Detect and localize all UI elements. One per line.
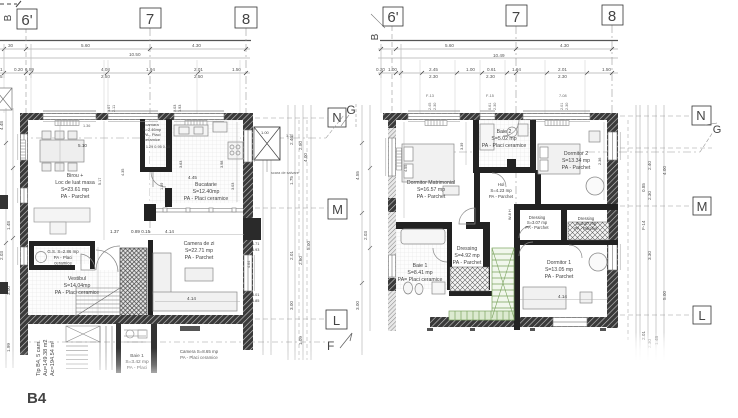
svg-text:Dormitor 1: Dormitor 1	[547, 260, 571, 266]
svg-text:S=14.04mp: S=14.04mp	[64, 283, 91, 289]
svg-text:1.94: 1.94	[146, 67, 155, 72]
svg-text:PA - Placi: PA - Placi	[54, 255, 73, 260]
svg-text:2.01: 2.01	[560, 103, 564, 110]
svg-text:M: M	[332, 202, 343, 217]
svg-text:2.03: 2.03	[363, 231, 368, 240]
svg-text:PA - Parchet: PA - Parchet	[61, 194, 90, 200]
svg-text:2.46: 2.46	[289, 136, 294, 145]
svg-text:5: 5	[0, 74, 3, 79]
svg-text:0.20: 0.20	[14, 67, 23, 72]
svg-text:L: L	[698, 308, 705, 323]
svg-text:F: F	[327, 339, 334, 353]
svg-text:1.29 0.95 0.15: 1.29 0.95 0.15	[146, 145, 170, 149]
svg-text:S=4.92 mp: S=4.92 mp	[454, 253, 479, 259]
svg-text:B4: B4	[27, 390, 47, 407]
svg-text:W-8 H: W-8 H	[508, 209, 512, 220]
svg-text:2.11: 2.11	[112, 105, 116, 112]
svg-text:1.37: 1.37	[110, 229, 119, 234]
svg-text:2.45: 2.45	[429, 67, 438, 72]
svg-text:F-13: F-13	[426, 94, 434, 98]
svg-text:2.50: 2.50	[298, 141, 303, 150]
svg-text:4.30: 4.30	[192, 43, 201, 48]
svg-text:0.20: 0.20	[376, 67, 385, 72]
svg-text:8: 8	[608, 8, 616, 25]
svg-text:Loc de luat masa: Loc de luat masa	[55, 180, 95, 186]
svg-text:4.35: 4.35	[121, 169, 125, 176]
svg-text:2.01: 2.01	[194, 67, 203, 72]
svg-text:2.50: 2.50	[101, 74, 110, 79]
svg-text:1.39: 1.39	[160, 183, 164, 190]
svg-text:8.01: 8.01	[252, 293, 259, 297]
svg-text:4.48: 4.48	[0, 121, 4, 130]
svg-text:ceramice: ceramice	[54, 261, 72, 266]
svg-text:2.03: 2.03	[0, 251, 4, 260]
svg-text:1.75: 1.75	[289, 176, 294, 185]
svg-text:B: B	[3, 14, 14, 21]
svg-text:3.63: 3.63	[179, 161, 183, 168]
svg-text:1.48: 1.48	[6, 221, 11, 230]
svg-text:2.50: 2.50	[194, 74, 203, 79]
svg-text:PA - Placi ceramice: PA - Placi ceramice	[184, 196, 229, 202]
svg-text:N: N	[696, 108, 705, 123]
svg-text:3.39: 3.39	[460, 143, 464, 150]
svg-text:S=8.41 mp: S=8.41 mp	[407, 270, 432, 276]
svg-text:G: G	[713, 124, 722, 136]
svg-text:3.98: 3.98	[220, 161, 224, 168]
svg-text:S=23.61 mp: S=23.61 mp	[61, 187, 89, 193]
svg-text:scara de salvare: scara de salvare	[271, 171, 299, 175]
svg-text:2.30: 2.30	[429, 74, 438, 79]
svg-text:6': 6'	[387, 9, 398, 26]
svg-text:Vestibul: Vestibul	[68, 276, 86, 282]
svg-text:7-08: 7-08	[559, 94, 567, 98]
svg-text:PA - Placi ceramice: PA - Placi ceramice	[55, 290, 100, 296]
svg-text:PA - Parchet: PA - Parchet	[574, 226, 598, 231]
svg-text:1.50: 1.50	[602, 67, 611, 72]
svg-text:2.30: 2.30	[433, 103, 437, 110]
svg-text:F-14: F-14	[641, 220, 646, 230]
svg-text:4.55: 4.55	[404, 165, 408, 172]
svg-text:5.00: 5.00	[306, 241, 311, 250]
svg-text:Hol: Hol	[498, 182, 505, 187]
svg-text:S=4.23 mp: S=4.23 mp	[490, 188, 512, 193]
svg-text:1.07: 1.07	[107, 105, 111, 112]
svg-text:1.94: 1.94	[512, 67, 521, 72]
svg-text:2.01: 2.01	[289, 251, 294, 260]
svg-text:3.03: 3.03	[173, 105, 177, 112]
svg-text:S=16.57 mp: S=16.57 mp	[417, 187, 445, 193]
svg-text:1.71: 1.71	[252, 242, 259, 246]
svg-text:5.17: 5.17	[98, 178, 102, 185]
svg-text:PA - Parchet: PA - Parchet	[545, 274, 574, 280]
svg-text:4.08: 4.08	[101, 67, 110, 72]
svg-text:4.14: 4.14	[558, 294, 567, 299]
svg-text:5.60: 5.60	[445, 43, 454, 48]
svg-text:4.14: 4.14	[187, 296, 196, 301]
svg-text:10.50: 10.50	[129, 52, 141, 57]
svg-text:4.30: 4.30	[560, 43, 569, 48]
svg-text:PA - Parchet: PA - Parchet	[185, 255, 214, 261]
svg-text:0.89 0.15: 0.89 0.15	[131, 229, 151, 234]
svg-text:Bucatarie: Bucatarie	[195, 182, 217, 188]
svg-text:F-15: F-15	[486, 94, 494, 98]
svg-text:2.60: 2.60	[298, 256, 303, 265]
svg-text:5.00: 5.00	[662, 291, 667, 300]
svg-text:5.60: 5.60	[81, 43, 90, 48]
svg-text:2.30: 2.30	[647, 191, 652, 200]
svg-text:10.49: 10.49	[493, 53, 505, 58]
svg-text:2.30: 2.30	[493, 103, 497, 110]
svg-text:S=13.05 mp: S=13.05 mp	[545, 267, 573, 273]
svg-text:4.55: 4.55	[355, 171, 360, 180]
svg-text:7: 7	[146, 11, 154, 28]
svg-text:1.00: 1.00	[466, 67, 475, 72]
svg-text:2.30: 2.30	[565, 103, 569, 110]
svg-text:Baie 1: Baie 1	[413, 263, 428, 269]
svg-text:0.85: 0.85	[641, 183, 646, 192]
svg-text:4.14: 4.14	[165, 229, 174, 234]
svg-text:B: B	[370, 33, 381, 40]
svg-text:S=12.40mp: S=12.40mp	[193, 189, 220, 195]
svg-text:PA - Parchet: PA - Parchet	[562, 165, 591, 171]
svg-text:2.30: 2.30	[486, 74, 495, 79]
svg-text:1.09: 1.09	[298, 336, 303, 345]
svg-text:S=5.02 mp: S=5.02 mp	[491, 136, 516, 142]
svg-text:2.01: 2.01	[558, 67, 567, 72]
svg-text:6.99: 6.99	[25, 67, 34, 72]
svg-text:Dormitor Matrimonial: Dormitor Matrimonial	[407, 180, 455, 186]
svg-text:PA - Placi ceramice: PA - Placi ceramice	[482, 143, 527, 149]
svg-text:3.00: 3.00	[355, 301, 360, 310]
svg-text:1.00: 1.00	[388, 67, 397, 72]
svg-text:Dormitor 2: Dormitor 2	[564, 151, 588, 157]
svg-text:5.10: 5.10	[78, 143, 87, 148]
svg-text:Au=149.38 m2: Au=149.38 m2	[43, 339, 49, 376]
svg-text:1.00: 1.00	[261, 130, 270, 135]
svg-text:4.45: 4.45	[188, 175, 197, 180]
svg-text:G.S. S=2.86 mp: G.S. S=2.86 mp	[47, 249, 79, 254]
svg-text:4.00: 4.00	[303, 153, 308, 162]
svg-text:Baie 2: Baie 2	[497, 129, 512, 135]
svg-text:Camera de zi: Camera de zi	[184, 241, 215, 247]
svg-text:Ac=194.54 m²: Ac=194.54 m²	[50, 341, 56, 376]
svg-text:1.36: 1.36	[83, 124, 90, 128]
svg-text:N: N	[332, 110, 341, 125]
svg-text:S=22.71 mp: S=22.71 mp	[185, 248, 213, 254]
svg-text:3.00: 3.00	[289, 301, 294, 310]
svg-text:PA - Parchet: PA - Parchet	[417, 194, 446, 200]
svg-text:1: 1	[0, 67, 3, 72]
svg-text:2.45: 2.45	[428, 103, 432, 110]
svg-text:PA - Parchet: PA - Parchet	[525, 225, 549, 230]
svg-text:2.36: 2.36	[598, 158, 602, 165]
svg-text:PA - Parchet: PA - Parchet	[453, 260, 482, 266]
svg-text:S=13.34 mp: S=13.34 mp	[562, 158, 590, 164]
svg-text:1.93: 1.93	[252, 248, 259, 252]
svg-text:ceramice: ceramice	[144, 137, 161, 142]
svg-text:30: 30	[8, 43, 14, 48]
svg-text:0.61: 0.61	[487, 67, 496, 72]
svg-text:3.30: 3.30	[647, 251, 652, 260]
svg-text:2.40: 2.40	[647, 161, 652, 170]
svg-text:3.03: 3.03	[231, 183, 235, 190]
svg-text:Birou +: Birou +	[67, 173, 84, 179]
svg-text:2.30: 2.30	[558, 74, 567, 79]
svg-text:PA - Parchet: PA - Parchet	[489, 194, 514, 199]
svg-text:1.93: 1.93	[178, 105, 182, 112]
svg-text:4.00: 4.00	[662, 166, 667, 175]
svg-text:Tip B4, 5 cam.: Tip B4, 5 cam.	[36, 340, 42, 376]
svg-text:0.61: 0.61	[488, 103, 492, 110]
svg-text:8: 8	[242, 11, 250, 28]
svg-text:Dressing: Dressing	[457, 246, 478, 252]
svg-text:4.64: 4.64	[247, 261, 251, 268]
svg-text:6': 6'	[21, 12, 32, 29]
svg-text:PA= Placi ceramice: PA= Placi ceramice	[398, 277, 443, 283]
svg-text:L: L	[333, 313, 340, 328]
svg-text:7: 7	[512, 9, 520, 26]
svg-text:G: G	[346, 103, 355, 117]
svg-text:M: M	[697, 199, 708, 214]
svg-text:1.85: 1.85	[252, 299, 259, 303]
